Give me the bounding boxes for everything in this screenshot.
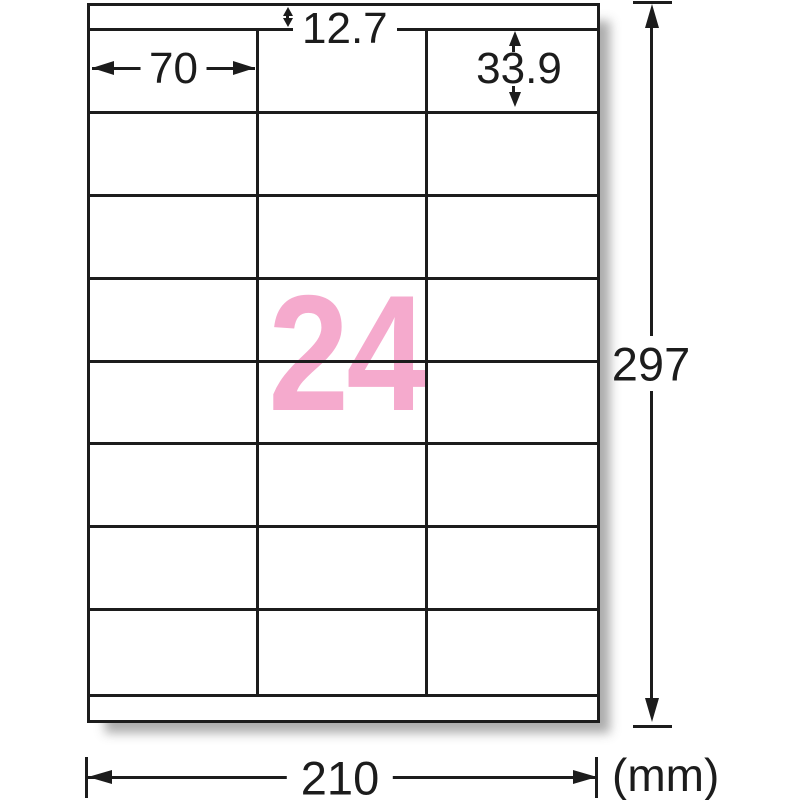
label-cell [428, 363, 597, 446]
label-cell [259, 114, 428, 197]
label-width-arrow: 70 [92, 67, 255, 70]
label-cell [90, 611, 259, 694]
label-cell [259, 363, 428, 446]
label-cell [259, 280, 428, 363]
unit-label: (mm) [612, 752, 719, 798]
label-sheet: 24 12.7 70 33.9 [87, 3, 600, 723]
sheet-height-bottom-tick [633, 725, 672, 728]
sheet-width-arrow-left-icon [88, 770, 112, 784]
sheet-height-arrow-up-icon [645, 4, 659, 28]
arrow-left-icon [92, 61, 114, 75]
label-cell [428, 445, 597, 528]
label-cell [428, 280, 597, 363]
sheet-width-arrow-right-icon [573, 770, 597, 784]
label-grid [90, 28, 597, 697]
arrow-right-icon [233, 61, 255, 75]
label-cell [90, 528, 259, 611]
label-cell [428, 528, 597, 611]
sheet-width-right-tick [595, 757, 598, 798]
label-sheet-diagram: 24 12.7 70 33.9 297 210 (mm) [0, 0, 800, 800]
label-width-dimension: 70 [140, 47, 207, 91]
label-cell [259, 197, 428, 280]
label-cell [259, 528, 428, 611]
label-cell [259, 611, 428, 694]
label-height-dimension: 33.9 [476, 47, 562, 91]
label-cell [428, 611, 597, 694]
sheet-height-arrow-down-icon [645, 698, 659, 722]
label-cell [90, 197, 259, 280]
sheet-height-line-lower [650, 391, 653, 699]
label-cell [428, 114, 597, 197]
label-cell [259, 445, 428, 528]
sheet-height-line-upper [650, 26, 653, 336]
sheet-height-dimension: 297 [612, 341, 690, 388]
label-cell [428, 197, 597, 280]
top-margin-dimension: 12.7 [293, 7, 397, 51]
label-cell [90, 114, 259, 197]
sheet-width-dimension: 210 [287, 755, 393, 800]
top-margin-arrow-down-icon [283, 18, 293, 27]
label-cell [90, 363, 259, 446]
label-cell [90, 445, 259, 528]
label-cell [90, 280, 259, 363]
